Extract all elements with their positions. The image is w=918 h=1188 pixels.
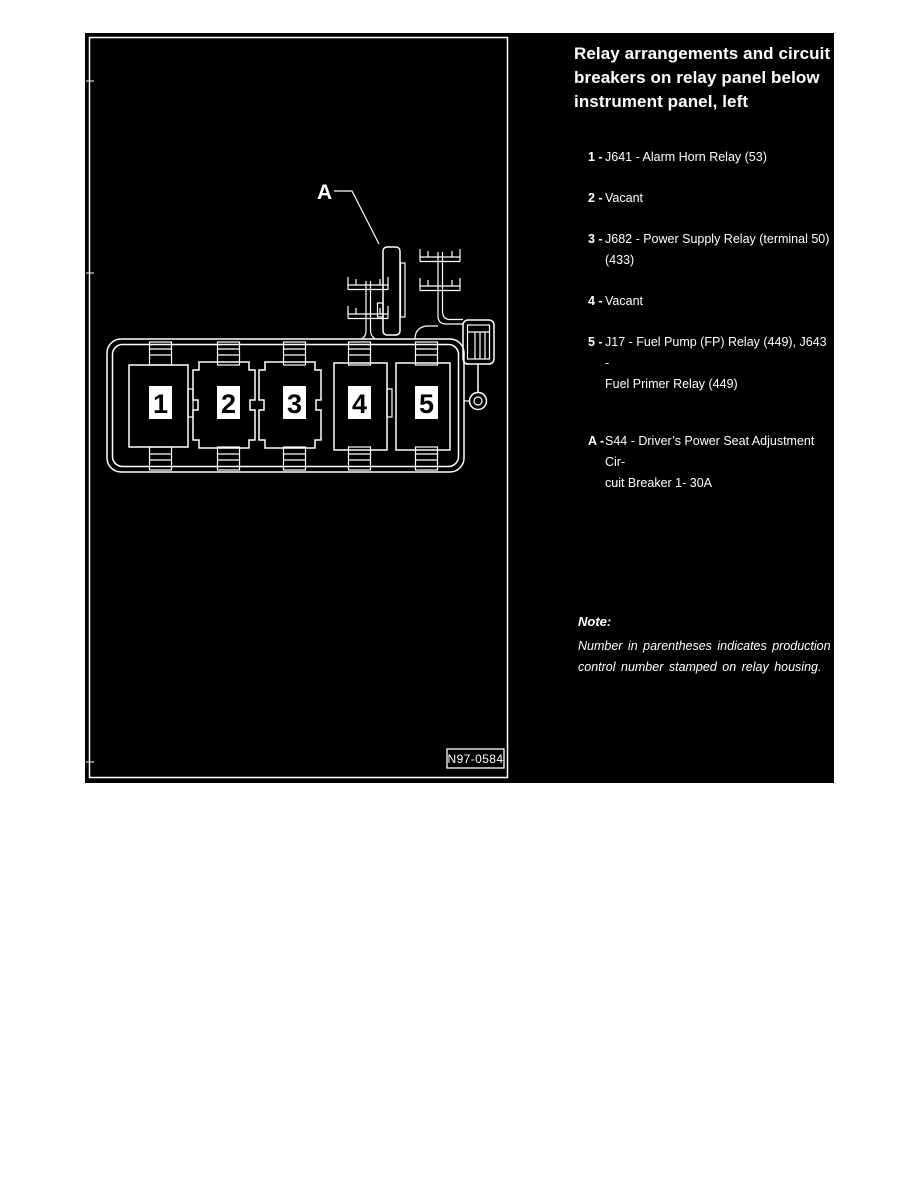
relay-number-2: 2: [221, 389, 236, 419]
relay-number-1: 1: [153, 389, 168, 419]
legend-item-a: A - S44 - Driver’s Power Seat Adjustment…: [588, 431, 833, 494]
item-text: Vacant: [605, 291, 833, 312]
circuit-breaker-shape: [378, 247, 406, 335]
note-section: Note: Number in parentheses indicates pr…: [578, 611, 833, 678]
legend-item-5: 5 - J17 - Fuel Pump (FP) Relay (449), J6…: [588, 332, 833, 395]
callout-leader-line: [334, 191, 379, 244]
note-label: Note:: [578, 611, 833, 632]
item-text: J17 - Fuel Pump (FP) Relay (449), J643 -…: [605, 332, 833, 395]
item-text: J641 - Alarm Horn Relay (53): [605, 147, 833, 168]
edge-connector-shape: [463, 320, 494, 393]
item-marker: 2 -: [588, 188, 605, 209]
item-text: J682 - Power Supply Relay (terminal 50)(…: [605, 229, 833, 271]
item-text: Vacant: [605, 188, 833, 209]
legend-item-3: 3 - J682 - Power Supply Relay (terminal …: [588, 229, 833, 271]
item-marker: 5 -: [588, 332, 605, 395]
relay-diagram-svg: 1 2 3 4 5 A N97-0584: [85, 33, 512, 783]
item-text: S44 - Driver’s Power Seat Adjustment Cir…: [605, 431, 833, 494]
legend-item-4: 4 - Vacant: [588, 291, 833, 312]
manual-page: { "colors": { "page_background": "#fffff…: [0, 0, 918, 1188]
item-marker: A -: [588, 431, 605, 494]
legend-items: 1 - J641 - Alarm Horn Relay (53) 2 - Vac…: [574, 147, 833, 494]
content-block: 1 2 3 4 5 A N97-0584 Relay arrangements …: [85, 33, 834, 783]
relay-number-3: 3: [287, 389, 302, 419]
bracket-right-shape: [415, 249, 463, 339]
legend-panel: Relay arrangements and circuitbreakers o…: [512, 33, 834, 783]
mounting-ring-shape: [464, 393, 487, 410]
relay-number-5: 5: [419, 389, 434, 419]
bracket-left-shape: [348, 277, 388, 339]
note-text: Number in parentheses indicates producti…: [578, 636, 833, 678]
item-marker: 4 -: [588, 291, 605, 312]
figure-number-label: N97-0584: [448, 752, 504, 766]
legend-item-1: 1 - J641 - Alarm Horn Relay (53): [588, 147, 833, 168]
relay-number-4: 4: [352, 389, 367, 419]
item-marker: 1 -: [588, 147, 605, 168]
relay-diagram-figure: 1 2 3 4 5 A N97-0584: [85, 33, 512, 783]
legend-item-2: 2 - Vacant: [588, 188, 833, 209]
item-marker: 3 -: [588, 229, 605, 271]
callout-a-label: A: [317, 181, 332, 204]
page-title: Relay arrangements and circuitbreakers o…: [574, 42, 833, 114]
